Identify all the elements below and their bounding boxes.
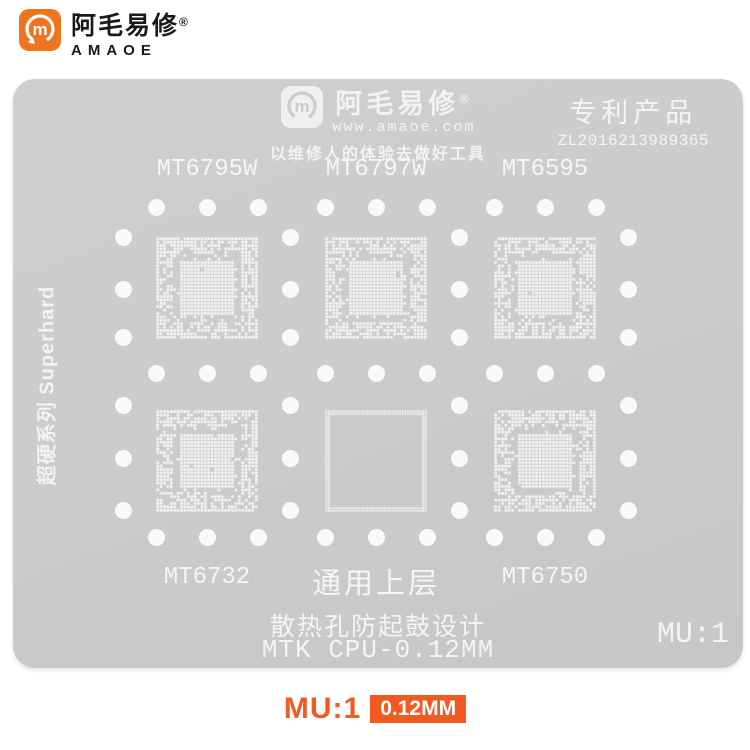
stencil-hole [148,365,165,382]
stencil-hole [588,365,605,382]
stencil-hole [451,397,468,414]
stencil-hole [115,329,132,346]
patent-block: 专利产品 ZL2016213989365 [557,91,709,150]
stencil-hole [199,529,216,546]
chip-footprint-MT6797W [325,237,427,339]
stencil-hole [620,229,637,246]
svg-text:m: m [295,97,310,116]
footer-thickness-badge: 0.12MM [370,695,466,723]
chip-footprint-MT6595 [494,237,596,339]
chip-footprint-MT6750 [494,410,596,512]
brand-logo: m 阿毛易修® AMAOE [18,8,190,60]
stencil-hole [368,529,385,546]
stencil-hole [588,199,605,216]
footer-model-code: MU:1 [284,692,361,726]
chip-label-mt6795w: MT6795W [117,156,297,183]
stencil-hole [282,397,299,414]
brand-name-en: AMAOE [71,42,190,60]
stencil-hole [620,329,637,346]
stencil-hole [250,529,267,546]
stencil-hole [282,281,299,298]
stencil-hole [620,281,637,298]
stencil-hole [451,229,468,246]
stencil-hole [620,397,637,414]
stencil-hole [282,450,299,467]
chip-footprint-MT6795W [156,237,258,339]
stencil-hole [317,529,334,546]
brand-logo-icon: m [18,8,62,52]
stencil-hole [317,199,334,216]
stencil-hole [451,281,468,298]
stencil-hole [537,365,554,382]
stencil-hole [250,199,267,216]
chip-label-mt6797w: MT6797W [286,156,466,183]
stencil-hole [368,365,385,382]
stencil-hole [115,450,132,467]
stencil-hole [368,199,385,216]
chip-label-universal-upper: 通用上层 [286,560,466,602]
registered-mark: ® [179,15,190,29]
model-code-etched: MU:1 [613,618,750,652]
watermark-logo-icon: m [280,85,324,129]
stencil-hole [115,397,132,414]
watermark-brand: 阿毛易修® [335,85,473,118]
stencil-hole [282,229,299,246]
stencil-hole [250,365,267,382]
stencil-hole [419,365,436,382]
chip-label-mt6732: MT6732 [117,564,297,591]
stencil-hole [486,529,503,546]
stencil-hole [486,365,503,382]
stencil-hole [451,450,468,467]
svg-text:m: m [32,20,47,39]
stencil-hole [317,365,334,382]
stencil-hole [115,502,132,519]
stencil-hole [419,199,436,216]
chip-label-mt6750: MT6750 [455,564,635,591]
watermark-url: www.amaoe.com [332,120,475,136]
patent-title: 专利产品 [557,91,709,130]
chip-footprint-MT6732 [156,410,258,512]
stencil-hole [588,529,605,546]
stencil-hole [115,281,132,298]
stencil-hole [148,199,165,216]
chip-footprint-通用上层 [325,410,427,512]
stencil-hole [282,502,299,519]
series-side-label: 超硬系列 Superhard [31,276,60,496]
stencil-hole [620,502,637,519]
brand-name-cn: 阿毛易修® [71,8,190,40]
footer-spec: MU:1 0.12MM [0,692,750,726]
stencil-hole [537,529,554,546]
stencil-hole [282,329,299,346]
stencil-hole [199,365,216,382]
stencil-hole [451,329,468,346]
stencil-hole [148,529,165,546]
stencil-hole [451,502,468,519]
stencil-hole [419,529,436,546]
stencil-hole [620,450,637,467]
stencil-hole [486,199,503,216]
chip-label-mt6595: MT6595 [455,156,635,183]
patent-number: ZL2016213989365 [557,132,709,150]
stencil-hole [199,199,216,216]
stencil-plate: m 阿毛易修® www.amaoe.com 以维修人的体验去做好工具 专利产品 … [13,79,743,668]
stencil-hole [537,199,554,216]
stencil-hole [115,229,132,246]
